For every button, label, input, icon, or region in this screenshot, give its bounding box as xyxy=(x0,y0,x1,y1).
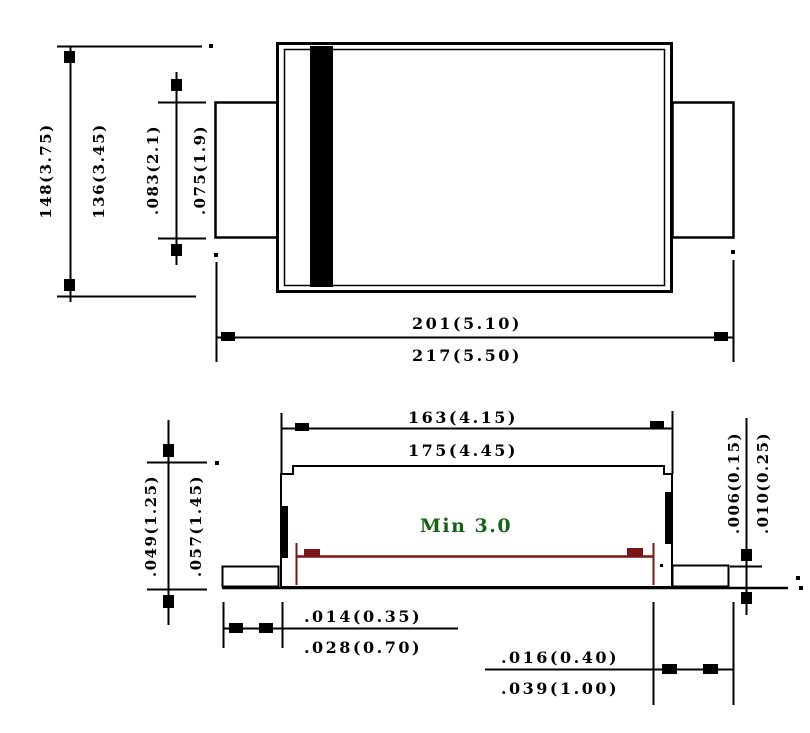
dim-arrowhead xyxy=(64,51,75,63)
side-view xyxy=(222,466,803,590)
dim-terminal-min-label: .016(0.40) xyxy=(501,648,619,667)
dim-height-max-label: 148(3.75) xyxy=(37,123,55,219)
dim-foot-length: .014(0.35) .028(0.70) xyxy=(223,602,458,657)
dim-foot-max-label: .028(0.70) xyxy=(304,638,422,657)
dim-arrowhead xyxy=(259,623,273,633)
centerline-dot xyxy=(214,253,218,257)
dim-arrowhead xyxy=(163,444,174,457)
dim-terminal-width-max-label: .083(2.1) xyxy=(144,125,162,215)
dim-arrowhead xyxy=(703,664,718,674)
left-terminal xyxy=(216,103,278,238)
dim-arrowhead xyxy=(741,549,752,561)
dim-arrowhead xyxy=(662,664,677,674)
dim-arrowhead xyxy=(295,423,309,431)
dim-arrowhead xyxy=(64,279,75,291)
package-body-outline xyxy=(278,44,672,292)
dim-standoff-min-label: .006(0.15) xyxy=(725,432,743,534)
dim-body-length-label: 201(5.10) xyxy=(412,314,522,333)
dim-body-height: 148(3.75) 136(3.45) xyxy=(37,44,213,302)
dim-terminal-max-label: .039(1.00) xyxy=(501,679,619,698)
dim-solder-pad: Min 3.0 xyxy=(296,515,663,585)
dim-arrowhead xyxy=(741,592,752,604)
dim-arrowhead xyxy=(229,623,243,633)
dim-foot-min-label: .014(0.35) xyxy=(304,607,422,626)
solder-pad-note: Min 3.0 xyxy=(420,515,512,537)
dim-arrowhead xyxy=(221,332,235,341)
centerline-dot xyxy=(660,564,663,567)
dim-side-height: .049(1.25) .057(1.45) xyxy=(142,420,219,625)
top-view xyxy=(216,44,734,292)
right-terminal-foot xyxy=(673,566,729,587)
pad-dim-arrowhead xyxy=(304,549,320,557)
centerline-dot xyxy=(799,586,803,590)
dim-terminal-length: .016(0.40) .039(1.00) xyxy=(485,602,734,705)
centerline-dot xyxy=(215,461,219,465)
dim-overall-length-label: 217(5.50) xyxy=(412,346,522,365)
dim-standoff: .006(0.15) .010(0.25) xyxy=(725,418,800,615)
dim-body-top-min-label: 163(4.15) xyxy=(408,408,518,427)
side-left-terminal-edge xyxy=(280,506,288,558)
dim-terminal-width-min-label: .075(1.9) xyxy=(191,125,209,215)
dim-arrowhead xyxy=(171,79,182,91)
dim-side-height-max-label: .057(1.45) xyxy=(187,475,205,577)
cathode-band xyxy=(310,46,333,287)
package-outline-drawing: 148(3.75) 136(3.45) .083(2.1) .075(1.9) … xyxy=(0,0,810,733)
dim-arrowhead xyxy=(650,421,664,429)
drawing-canvas: 148(3.75) 136(3.45) .083(2.1) .075(1.9) … xyxy=(0,0,810,733)
dim-arrowhead xyxy=(171,244,182,256)
dim-body-top-max-label: 175(4.45) xyxy=(408,441,518,460)
dim-terminal-width: .083(2.1) .075(1.9) xyxy=(144,72,209,265)
dim-package-length: 201(5.10) 217(5.50) xyxy=(214,250,735,365)
right-terminal xyxy=(673,103,734,238)
dim-standoff-max-label: .010(0.25) xyxy=(754,432,772,534)
centerline-dot xyxy=(209,44,213,48)
package-body-inner-outline xyxy=(285,50,665,286)
centerline-dot xyxy=(796,576,800,580)
dim-arrowhead xyxy=(714,332,728,341)
left-terminal-foot xyxy=(223,567,279,587)
dim-height-min-label: 136(3.45) xyxy=(90,123,108,219)
side-right-terminal-edge xyxy=(665,492,673,544)
dim-body-top-width: 163(4.15) 175(4.45) xyxy=(281,408,673,474)
pad-dim-arrowhead xyxy=(627,548,643,556)
dim-side-height-min-label: .049(1.25) xyxy=(142,475,160,577)
dim-arrowhead xyxy=(163,595,174,608)
centerline-dot xyxy=(731,250,735,254)
